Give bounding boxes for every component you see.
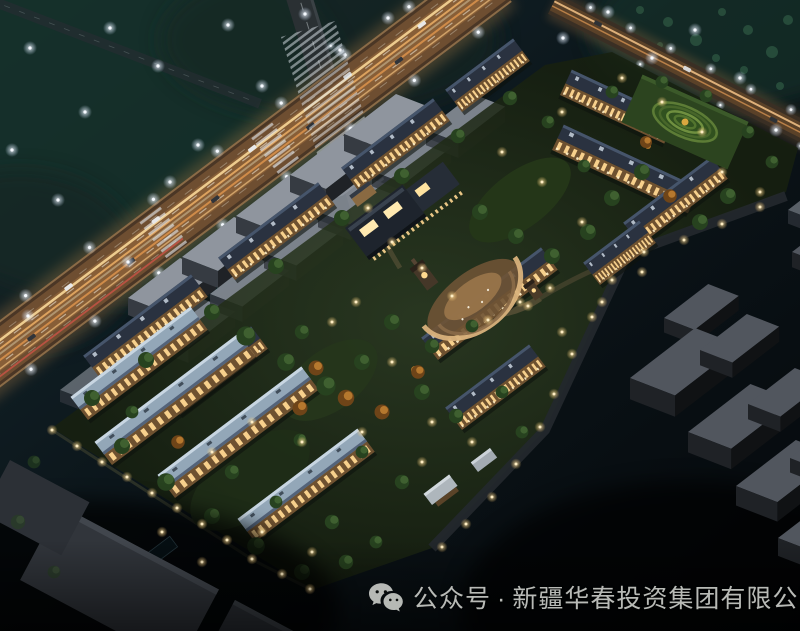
wechat-icon xyxy=(368,582,405,613)
caption-prefix: 公众号 xyxy=(413,585,491,613)
caption-text: 公众号·新疆华春投资集团有限公司 xyxy=(413,579,800,615)
caption-company: 新疆华春投资集团有限公司 xyxy=(512,585,800,613)
caption-separator: · xyxy=(497,585,506,613)
watermark-caption: 公众号·新疆华春投资集团有限公司 xyxy=(368,580,800,614)
scene-svg xyxy=(0,0,800,631)
aerial-night-render: 公众号·新疆华春投资集团有限公司 xyxy=(0,0,800,631)
